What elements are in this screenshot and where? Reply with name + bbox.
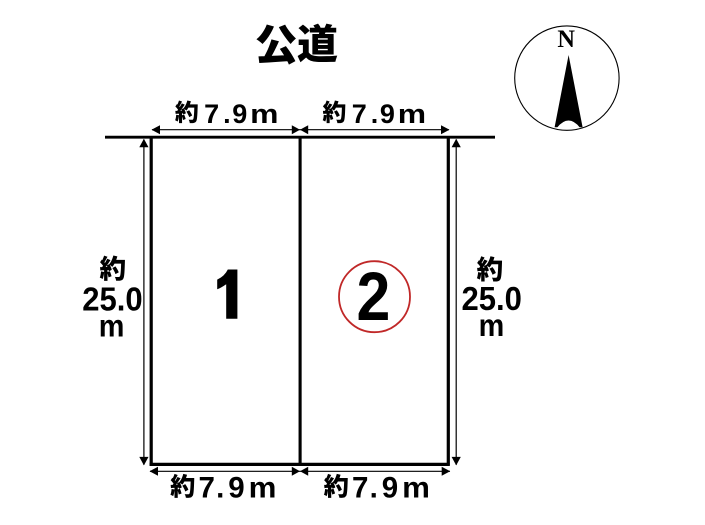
svg-text:N: N xyxy=(557,26,575,53)
svg-text:7.9: 7.9 xyxy=(352,99,395,129)
svg-text:m: m xyxy=(250,99,278,129)
svg-text:7.9: 7.9 xyxy=(199,472,245,505)
svg-text:7.9: 7.9 xyxy=(204,99,247,129)
svg-text:m: m xyxy=(402,471,430,504)
svg-text:7.9: 7.9 xyxy=(352,472,398,505)
svg-text:m: m xyxy=(479,309,505,344)
svg-text:m: m xyxy=(99,309,125,344)
svg-text:2: 2 xyxy=(356,258,390,335)
svg-text:m: m xyxy=(249,471,277,504)
svg-text:m: m xyxy=(398,99,426,129)
